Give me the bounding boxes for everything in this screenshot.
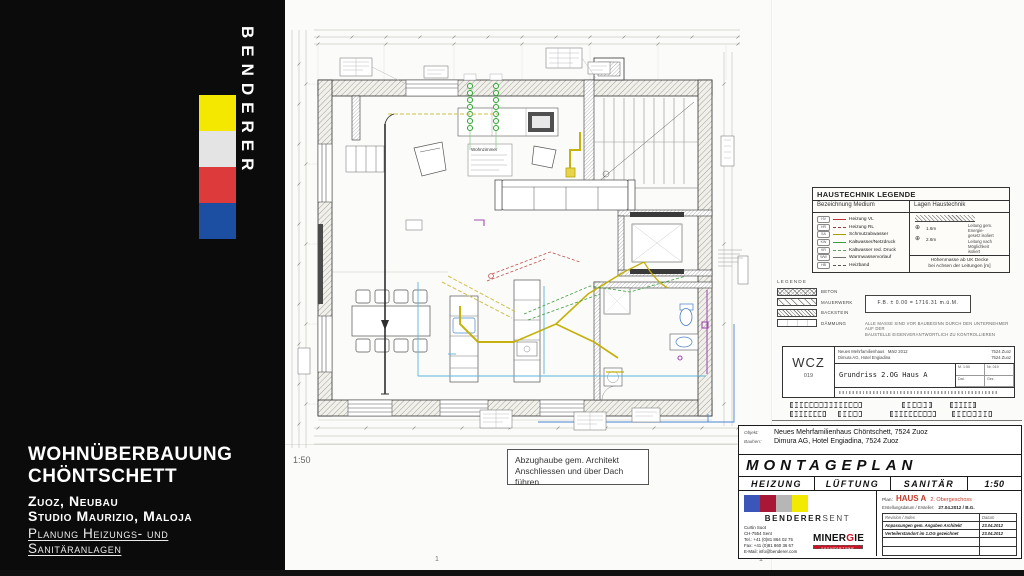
line-sample <box>833 219 846 220</box>
architect-code-cell: WCZ 019 <box>783 347 835 397</box>
haustechnik-legende-title: HAUSTECHNIK LEGENDE <box>813 188 1009 201</box>
objekt-label: Objekt: <box>744 430 774 435</box>
bathroom <box>602 288 698 400</box>
line-sample <box>833 242 846 243</box>
lagen-note-2: Leitung nach Möglichkeit isoliert <box>968 239 1009 254</box>
line-sample <box>833 257 846 258</box>
page-mark-left: 1 <box>435 556 439 563</box>
logo-square-blue <box>199 203 236 239</box>
stairs <box>594 98 698 184</box>
col-bezeichnung-medium: Bezeichnung Medium <box>813 201 910 212</box>
scale-cell: 1:50 <box>968 477 1021 490</box>
room-label-box: Wohnzimmer <box>468 144 512 176</box>
line-sample <box>833 234 846 235</box>
plan-label: Plan: <box>882 498 893 503</box>
hatch-daemmung <box>777 319 817 327</box>
plan-info-cell: Plan: HAUS A 2. Obergeschoss Erstellungs… <box>877 491 1021 556</box>
line-sample <box>833 227 846 228</box>
project-title-line1: WOHNÜBERBAUUNG <box>28 444 232 466</box>
company-address: Curtin Suot CH-7554 Sent Tel.: +41 (0)81… <box>744 525 797 555</box>
plan-name: HAUS A <box>896 494 926 503</box>
created-label: Erstellungsdatum / Ersteller: <box>882 505 934 510</box>
hatch-backstein <box>777 309 817 317</box>
company-square-blue <box>744 495 760 512</box>
sofa <box>495 180 635 210</box>
architect-block: WCZ 019 Neues Mehrfamilienhaus März 2012… <box>782 346 1015 420</box>
note-line1: Abzughaube gem. Architekt <box>515 455 641 466</box>
legend-row: HB Heizband <box>817 262 909 270</box>
kitchen <box>450 280 540 382</box>
minergie-logo: MINERGIE FACHPARTNER <box>813 533 864 544</box>
divider-line <box>772 420 1022 421</box>
discipline-heizung: HEIZUNG <box>739 477 815 490</box>
haustechnik-legende: HAUSTECHNIK LEGENDE Bezeichnung Medium L… <box>812 187 1010 273</box>
heating-pipes-red <box>487 252 580 281</box>
logo-square-yellow <box>199 95 236 131</box>
line-sample <box>833 250 846 251</box>
level-reference-box: F.B. ± 0.00 = 1716.31 m.ü.M. <box>865 295 971 313</box>
drawing-title: Grundriss 2.OG Haus A <box>835 364 955 387</box>
discipline-sanitaer: SANITÄR <box>891 477 968 490</box>
legend-row: HR Heizung RL <box>817 224 909 232</box>
lagen-diagram: ⊕ 1.6m ⊕ 2.6m Leitung gem. Energie- gese… <box>910 213 1009 273</box>
discipline-row: HEIZUNG LÜFTUNG SANITÄR 1:50 <box>739 476 1021 490</box>
reference-scale-bars <box>782 400 1015 420</box>
col-lagen-haustechnik: Lagen Haustechnik <box>910 201 965 212</box>
revision-table: Revision / Index Datum Anpassungen gem. … <box>882 513 1017 556</box>
material-legende: LEGENDE BETON MAUERWERK BACKSTEIN DÄMMUN… <box>777 280 1017 344</box>
room-label: Wohnzimmer <box>471 147 498 152</box>
line-sample <box>833 265 846 266</box>
plan-floor: 2. Obergeschoss <box>930 497 972 503</box>
project-scope-line1: Planung Heizungs- und <box>28 527 232 542</box>
slide: BENDERER WOHNÜBERBAUUNG CHÖNTSCHETT Zuoz… <box>0 0 1024 576</box>
legend-media-list: HV Heizung VL HR Heizung RL SA Schmutzab… <box>813 213 910 273</box>
company-square-gray <box>776 495 792 512</box>
project-sub-line1: Zuoz, Neubau <box>28 494 232 509</box>
hatch-mauerwerk <box>777 298 817 306</box>
brand-logo-text: BENDERER <box>237 26 257 177</box>
pipe-symbol: ⊕ <box>915 235 920 242</box>
legende-title: LEGENDE <box>777 280 1017 285</box>
ceiling-hatch <box>915 215 975 222</box>
hatch-beton <box>777 288 817 296</box>
revision-row: Anpassungen gem. Angaben Architekt 23.04… <box>883 522 1016 530</box>
bauherr-label: Bauherr: <box>744 439 774 444</box>
legend-row: KW Kaltwasser/Netzdruck <box>817 239 909 247</box>
company-square-crimson <box>760 495 776 512</box>
revision-row: Verteilerstandort im 1.OG gezeichnet 23.… <box>883 530 1016 538</box>
micro-measure-row <box>839 391 999 394</box>
lagen-note-1: Leitung gem. Energie- gesetz isoliert <box>968 223 1009 238</box>
plan-sheet: Wohnzimmer <box>285 0 1024 570</box>
company-cell: BENDERERSENT Curtin Suot CH-7554 Sent Te… <box>739 491 877 556</box>
legend-row: SA Schmutzabwasser <box>817 231 909 239</box>
sidebar: BENDERER WOHNÜBERBAUUNG CHÖNTSCHETT Zuoz… <box>0 0 285 576</box>
brand-logo-squares <box>199 95 236 239</box>
bottom-black-strip <box>0 570 1024 576</box>
created-value: 27.04.2012 / B.G. <box>938 505 974 510</box>
architect-location: 7524 Zuoz 7524 Zuoz <box>977 347 1014 363</box>
bauherr-value: Dimura AG, Hotel Engiadina, 7524 Zuoz <box>774 438 899 445</box>
yellow-fixture <box>566 168 575 177</box>
lagen-footer: Höhenmasse ab UK Decke bei Achsen der Le… <box>910 255 1009 273</box>
pipe-symbol: ⊕ <box>915 224 920 231</box>
logo-square-gray <box>199 131 236 167</box>
logo-square-red <box>199 167 236 203</box>
minergie-bar: FACHPARTNER <box>813 545 863 550</box>
montageplan-title-block: Objekt: Neues Mehrfamilienhaus Chöntsche… <box>738 425 1022 559</box>
company-name: BENDERERSENT <box>739 514 876 523</box>
drawing-meta-cells: M. 1:50 Nr. 019 Dat. Gez. <box>955 364 1014 387</box>
project-sub-line2: Studio Maurizio, Maloja <box>28 509 232 524</box>
plan-scale-label: 1:50 <box>293 455 311 465</box>
masse-note: ALLE MASSE SIND VOR BAUBEGINN DURCH DEN … <box>865 321 1015 337</box>
floor-plan: Wohnzimmer <box>288 24 766 452</box>
revision-row-empty <box>883 538 1016 547</box>
revision-header: Revision / Index Datum <box>883 514 1016 522</box>
company-square-yellow <box>792 495 808 512</box>
discipline-lueftung: LÜFTUNG <box>815 477 891 490</box>
company-logo-squares <box>744 495 808 512</box>
project-title-line2: CHÖNTSCHETT <box>28 466 232 488</box>
revision-row-empty <box>883 547 1016 555</box>
objekt-value: Neues Mehrfamilienhaus Chöntschett, 7524… <box>774 429 928 436</box>
architect-project-lines: Neues Mehrfamilienhaus März 2012 Dimura … <box>835 347 977 363</box>
legend-row: KR Kaltwasser red. Druck <box>817 246 909 254</box>
project-scope-line2: Sanitäranlagen <box>28 542 232 557</box>
project-text-block: WOHNÜBERBAUUNG CHÖNTSCHETT Zuoz, Neubau … <box>28 444 232 556</box>
note-line2: Anschliessen und über Dach führen <box>515 466 641 488</box>
legend-row: HV Heizung VL <box>817 216 909 224</box>
architect-note-box: Abzughaube gem. Architekt Anschliessen u… <box>507 449 649 485</box>
shelving <box>346 146 384 172</box>
montageplan-title: MONTAGEPLAN <box>739 454 1021 476</box>
legend-row: WW Warmwasservorlauf <box>817 254 909 262</box>
